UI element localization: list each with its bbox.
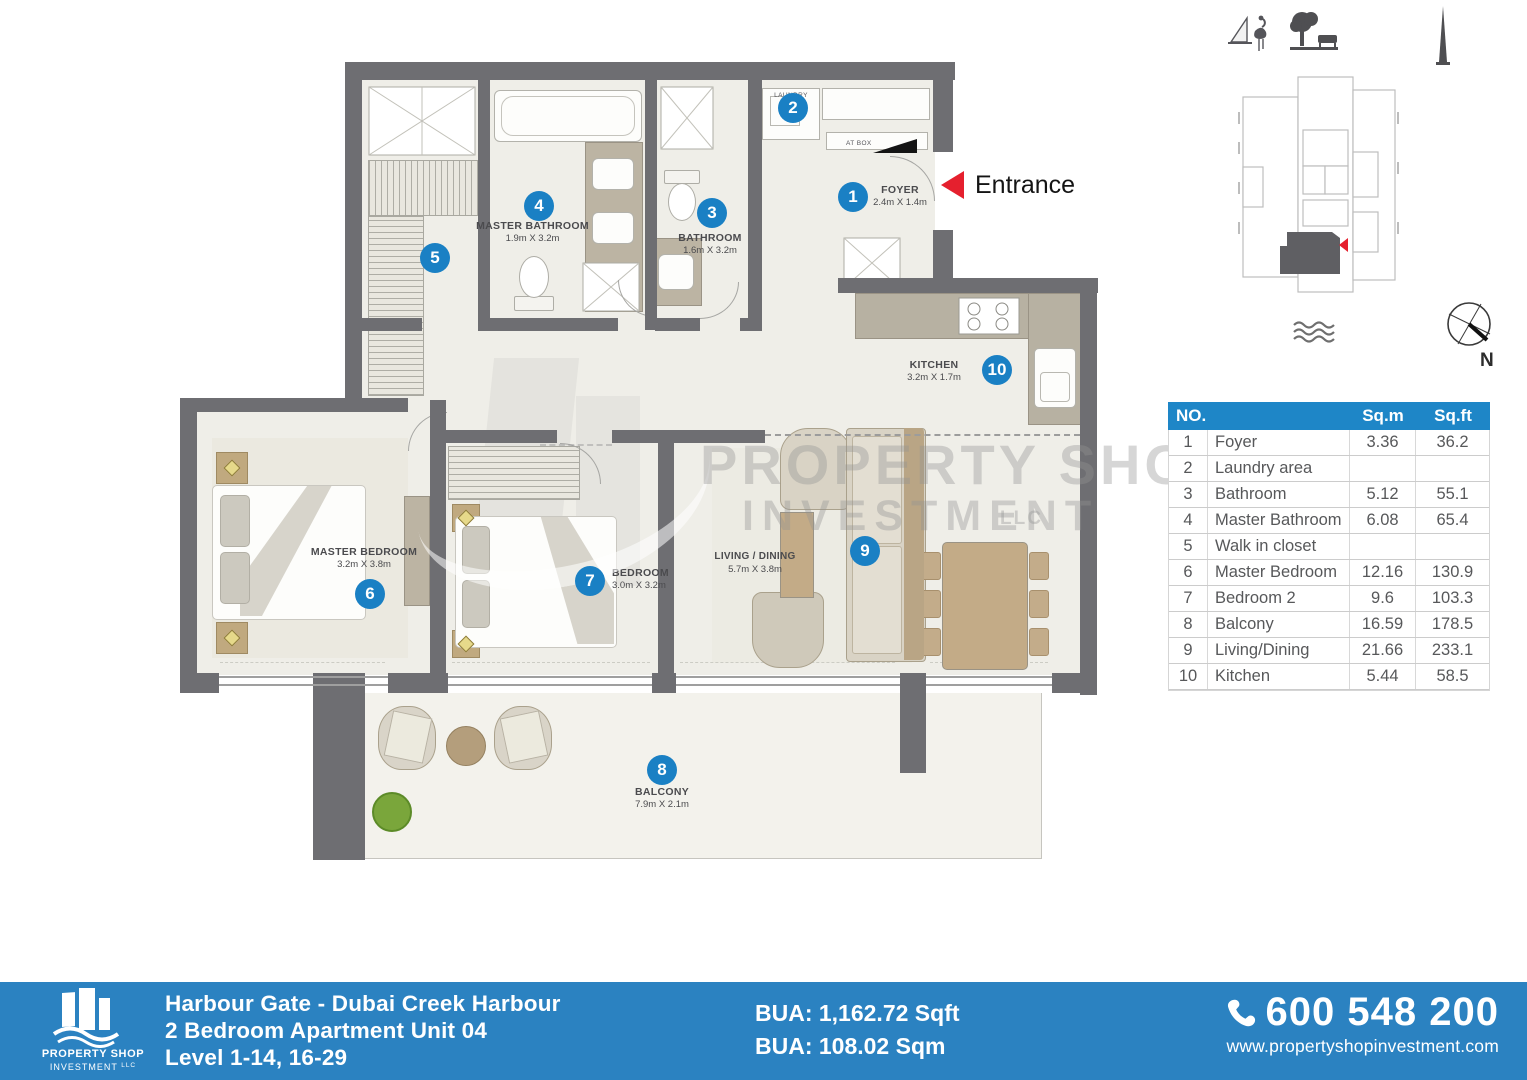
table-row: 1Foyer3.3636.2 <box>1169 430 1489 456</box>
room-badge-master-bedroom: 6 <box>355 579 385 609</box>
armchair <box>752 592 824 668</box>
table-row: 6Master Bedroom12.16130.9 <box>1169 560 1489 586</box>
table-row: 2Laundry area <box>1169 456 1489 482</box>
dining-chair <box>921 552 941 580</box>
label-foyer: FOYER 2.4m X 1.4m <box>855 184 945 209</box>
logo-text-line2: INVESTMENT LLC <box>18 1062 168 1072</box>
wall <box>748 80 762 330</box>
project-title: Harbour Gate - Dubai Creek Harbour <box>165 990 561 1017</box>
toilet <box>514 296 554 311</box>
room-badge-bedroom2: 7 <box>575 566 605 596</box>
shower-icon <box>660 86 714 150</box>
table-row: 10Kitchen5.4458.5 <box>1169 664 1489 690</box>
pillow <box>220 552 250 604</box>
plant <box>372 792 412 832</box>
wall <box>478 318 618 331</box>
at-box-label: AT BOX <box>846 140 872 147</box>
linen-closet-icon <box>368 86 476 156</box>
wall <box>180 398 408 412</box>
building-key-plan <box>1235 72 1400 297</box>
entrance-label: Entrance <box>975 171 1075 200</box>
room-badge-foyer: 1 <box>838 182 868 212</box>
wall <box>740 318 762 331</box>
floor-plan: PROPERTY SHOP INVESTMENT LLC <box>0 0 1160 980</box>
closet-rail <box>368 160 480 216</box>
wall <box>900 673 926 773</box>
stove-icon <box>958 297 1020 335</box>
watermark-line2: INVESTMENT <box>742 492 1099 541</box>
flyer-page: PROPERTY SHOP INVESTMENT LLC <box>0 0 1527 1080</box>
room-badge-laundry: 2 <box>778 93 808 123</box>
key-plan-unit <box>1280 232 1340 274</box>
wall <box>345 62 955 80</box>
header-sqft: Sq.ft <box>1416 406 1490 426</box>
phone-icon <box>1226 998 1256 1028</box>
toilet <box>664 170 700 184</box>
bua-sqft: BUA: 1,162.72 Sqft <box>755 997 960 1030</box>
sink <box>592 158 634 190</box>
project-titles: Harbour Gate - Dubai Creek Harbour 2 Bed… <box>165 990 561 1071</box>
website: www.propertyshopinvestment.com <box>1226 1036 1499 1057</box>
wall <box>445 430 557 443</box>
corridor-boundary <box>540 444 612 446</box>
label-living-dining: LIVING / DINING 5.7m X 3.8m <box>700 551 810 575</box>
header-sqm: Sq.m <box>1350 406 1416 426</box>
window-glass <box>448 676 652 686</box>
toilet <box>668 183 696 221</box>
bua-block: BUA: 1,162.72 Sqft BUA: 108.02 Sqm <box>755 997 960 1063</box>
window-glass <box>219 676 388 686</box>
bua-sqm: BUA: 108.02 Sqm <box>755 1030 960 1063</box>
room-badge-living: 9 <box>850 536 880 566</box>
flamingo-sailboat-icon <box>1225 10 1273 54</box>
table-row: 5Walk in closet <box>1169 534 1489 560</box>
closet-rail <box>368 216 424 396</box>
sink <box>658 254 694 290</box>
compass-icon <box>1446 300 1496 350</box>
header-no: NO. <box>1168 406 1208 426</box>
logo-text-line1: PROPERTY SHOP <box>18 1048 168 1060</box>
tree-bench-icon <box>1288 8 1340 56</box>
wall <box>180 398 197 693</box>
room-badge-master-bathroom: 4 <box>524 191 554 221</box>
wall <box>838 278 1098 293</box>
wall <box>652 673 676 693</box>
dining-chair <box>1029 590 1049 618</box>
wall <box>313 673 365 860</box>
wall <box>345 62 362 412</box>
watermark-line1: PROPERTY SHOP <box>700 432 1233 497</box>
area-table-body: 1Foyer3.3636.2 2Laundry area 3Bathroom5.… <box>1168 430 1490 691</box>
phone-row: 600 548 200 <box>1226 990 1499 1035</box>
area-table-header: NO. Sq.m Sq.ft <box>1168 402 1490 430</box>
dining-chair <box>921 628 941 656</box>
waves-icon <box>1293 320 1337 346</box>
toilet <box>519 256 549 298</box>
burj-khalifa-icon <box>1432 6 1454 68</box>
window-shade <box>452 662 650 663</box>
table-row: 3Bathroom5.1255.1 <box>1169 482 1489 508</box>
contact-block: 600 548 200 www.propertyshopinvestment.c… <box>1226 990 1499 1057</box>
pillow <box>462 580 490 628</box>
watermark-line3: LLC <box>1000 508 1043 530</box>
window-shade <box>220 662 385 663</box>
room-badge-balcony: 8 <box>647 755 677 785</box>
phone-number: 600 548 200 <box>1266 990 1499 1035</box>
dining-table <box>942 542 1028 670</box>
entry-shelf <box>822 88 930 120</box>
level-title: Level 1-14, 16-29 <box>165 1044 561 1071</box>
table-row: 8Balcony16.59178.5 <box>1169 612 1489 638</box>
floor-balcony <box>340 693 1042 859</box>
wall <box>933 62 953 152</box>
property-shop-logo-icon <box>48 986 138 1048</box>
unit-title: 2 Bedroom Apartment Unit 04 <box>165 1017 561 1044</box>
wall <box>478 80 490 330</box>
wall <box>362 318 422 331</box>
kitchen-sink-basin <box>1040 372 1070 402</box>
table-row: 4Master Bathroom6.0865.4 <box>1169 508 1489 534</box>
label-master-bathroom: MASTER BATHROOM 1.9m X 3.2m <box>465 220 600 245</box>
room-badge-kitchen: 10 <box>982 355 1012 385</box>
footer-bar: PROPERTY SHOP INVESTMENT LLC Harbour Gat… <box>0 982 1527 1080</box>
wall <box>195 673 219 693</box>
entrance-arrow-icon <box>941 171 964 199</box>
room-badge-bathroom: 3 <box>697 198 727 228</box>
wall <box>645 80 657 330</box>
dining-chair <box>1029 552 1049 580</box>
balcony-table <box>446 726 486 766</box>
label-bedroom2: BEDROOM 3.0m X 3.2m <box>612 567 702 592</box>
room-badge-walk-in-closet: 5 <box>420 243 450 273</box>
bathtub-inner <box>501 96 635 136</box>
logo-suffix: LLC <box>121 1062 136 1069</box>
table-row: 7Bedroom 29.6103.3 <box>1169 586 1489 612</box>
wall <box>388 673 448 693</box>
pillow <box>220 495 250 547</box>
label-balcony: BALCONY 7.9m X 2.1m <box>612 786 712 811</box>
label-master-bedroom: MASTER BEDROOM 3.2m X 3.8m <box>308 546 420 571</box>
dining-chair <box>1029 628 1049 656</box>
window-glass <box>676 676 900 686</box>
window-glass <box>926 676 1052 686</box>
area-table: NO. Sq.m Sq.ft 1Foyer3.3636.2 2Laundry a… <box>1168 402 1490 691</box>
label-bathroom: BATHROOM 1.6m X 3.2m <box>655 232 765 257</box>
dining-chair <box>921 590 941 618</box>
compass-north-label: N <box>1480 350 1494 372</box>
wall <box>1052 673 1097 693</box>
label-kitchen: KITCHEN 3.2m X 1.7m <box>890 359 978 384</box>
wall <box>655 318 700 331</box>
table-row: 9Living/Dining21.66233.1 <box>1169 638 1489 664</box>
